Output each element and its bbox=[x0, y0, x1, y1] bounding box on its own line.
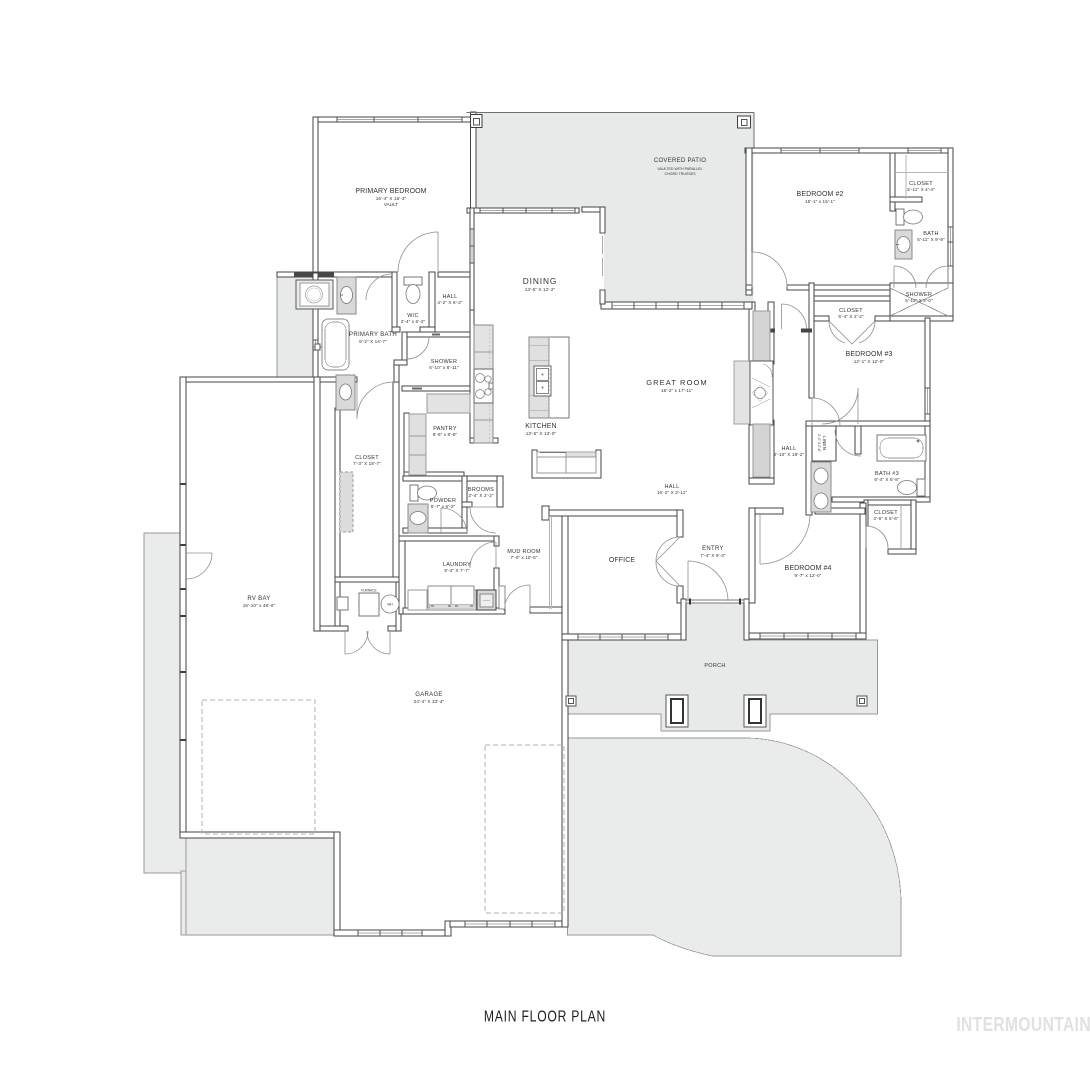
svg-text:5'-7" x 6'-2": 5'-7" x 6'-2" bbox=[431, 504, 456, 509]
svg-text:3'-6" X 5'-6": 3'-6" X 5'-6" bbox=[873, 516, 898, 521]
svg-text:6'-4" X 6'-8": 6'-4" X 6'-8" bbox=[874, 477, 899, 482]
svg-text:MAIN FLOOR PLAN: MAIN FLOOR PLAN bbox=[484, 1008, 606, 1026]
svg-text:GREAT ROOM: GREAT ROOM bbox=[646, 378, 708, 387]
svg-text:BEDROOM #4: BEDROOM #4 bbox=[785, 565, 832, 572]
svg-text:VAULTED WITH PARALLEL: VAULTED WITH PARALLEL bbox=[657, 167, 702, 171]
svg-text:16'-4" X 16'-3": 16'-4" X 16'-3" bbox=[376, 196, 407, 201]
svg-text:9'-2" X 14'-7": 9'-2" X 14'-7" bbox=[359, 339, 387, 344]
svg-text:BEDROOM #3: BEDROOM #3 bbox=[846, 351, 893, 358]
svg-text:13'-5" X 13'-0": 13'-5" X 13'-0" bbox=[526, 431, 557, 436]
svg-text:COVERED PATIO: COVERED PATIO bbox=[654, 158, 706, 164]
svg-text:PRIMARY BATH: PRIMARY BATH bbox=[349, 332, 397, 338]
svg-text:OFFICE: OFFICE bbox=[609, 557, 635, 564]
svg-text:BEDROOM #2: BEDROOM #2 bbox=[797, 191, 844, 198]
svg-text:9'-4" X 7'-7": 9'-4" X 7'-7" bbox=[444, 568, 469, 573]
svg-text:3'-4" X 2'-2": 3'-4" X 2'-2" bbox=[468, 493, 493, 498]
svg-text:13'-6" X 12'-2": 13'-6" X 12'-2" bbox=[525, 287, 556, 292]
svg-text:DINING: DINING bbox=[523, 276, 557, 286]
svg-text:CHORD TRUSSES: CHORD TRUSSES bbox=[664, 172, 696, 176]
svg-text:16'-2" X 3'-11": 16'-2" X 3'-11" bbox=[657, 490, 687, 495]
svg-text:WH: WH bbox=[387, 603, 393, 607]
svg-text:6'-4" X 2'-2": 6'-4" X 2'-2" bbox=[838, 314, 863, 319]
svg-text:ENTRY: ENTRY bbox=[702, 546, 724, 552]
svg-text:6'-10" x 6'-11": 6'-10" x 6'-11" bbox=[429, 365, 459, 370]
svg-text:15'-10" x 48'-0": 15'-10" x 48'-0" bbox=[243, 603, 276, 608]
svg-text:15'-1" x 15'-1": 15'-1" x 15'-1" bbox=[805, 199, 835, 204]
svg-text:16'-2" x 17'-11": 16'-2" x 17'-11" bbox=[661, 388, 693, 393]
svg-text:12'-1" X 12'-0": 12'-1" X 12'-0" bbox=[854, 359, 885, 364]
svg-text:FURNACE: FURNACE bbox=[361, 589, 376, 593]
svg-text:9'-6" x 8'-9": 9'-6" x 8'-9" bbox=[433, 432, 458, 437]
svg-text:7'-4" X 9'-3": 7'-4" X 9'-3" bbox=[700, 553, 725, 558]
svg-text:5'-11" X 4'-4": 5'-11" X 4'-4" bbox=[907, 187, 935, 192]
svg-text:7'-3" X 18'-7": 7'-3" X 18'-7" bbox=[353, 461, 381, 466]
svg-text:5'-11" X 9'-9": 5'-11" X 9'-9" bbox=[917, 237, 945, 242]
svg-text:7'-0" x 10'-5": 7'-0" x 10'-5" bbox=[510, 555, 537, 560]
svg-text:9'-7" x 12'-0": 9'-7" x 12'-0" bbox=[794, 573, 821, 578]
svg-text:5'-11" X 3'-0": 5'-11" X 3'-0" bbox=[905, 298, 933, 303]
svg-text:2'-4" x 6'-2": 2'-4" x 6'-2" bbox=[401, 319, 426, 324]
svg-text:RV BAY: RV BAY bbox=[247, 596, 270, 602]
svg-text:LINEN: LINEN bbox=[822, 436, 827, 450]
svg-text:2'-10" X 19'-2": 2'-10" X 19'-2" bbox=[774, 452, 805, 457]
svg-text:4'-2" X 6'-2": 4'-2" X 6'-2" bbox=[437, 300, 462, 305]
svg-text:PRIMARY BEDROOM: PRIMARY BEDROOM bbox=[355, 188, 426, 195]
svg-text:PORCH: PORCH bbox=[704, 663, 725, 669]
svg-text:2'-0" X 2'-6": 2'-0" X 2'-6" bbox=[817, 434, 821, 452]
svg-text:KITCHEN: KITCHEN bbox=[525, 423, 556, 430]
svg-text:VAULT: VAULT bbox=[384, 202, 399, 207]
svg-text:GARAGE: GARAGE bbox=[415, 692, 442, 698]
svg-text:24'-4" X 33'-4": 24'-4" X 33'-4" bbox=[414, 699, 445, 704]
svg-text:INTERMOUNTAIN: INTERMOUNTAIN bbox=[956, 1013, 1090, 1035]
